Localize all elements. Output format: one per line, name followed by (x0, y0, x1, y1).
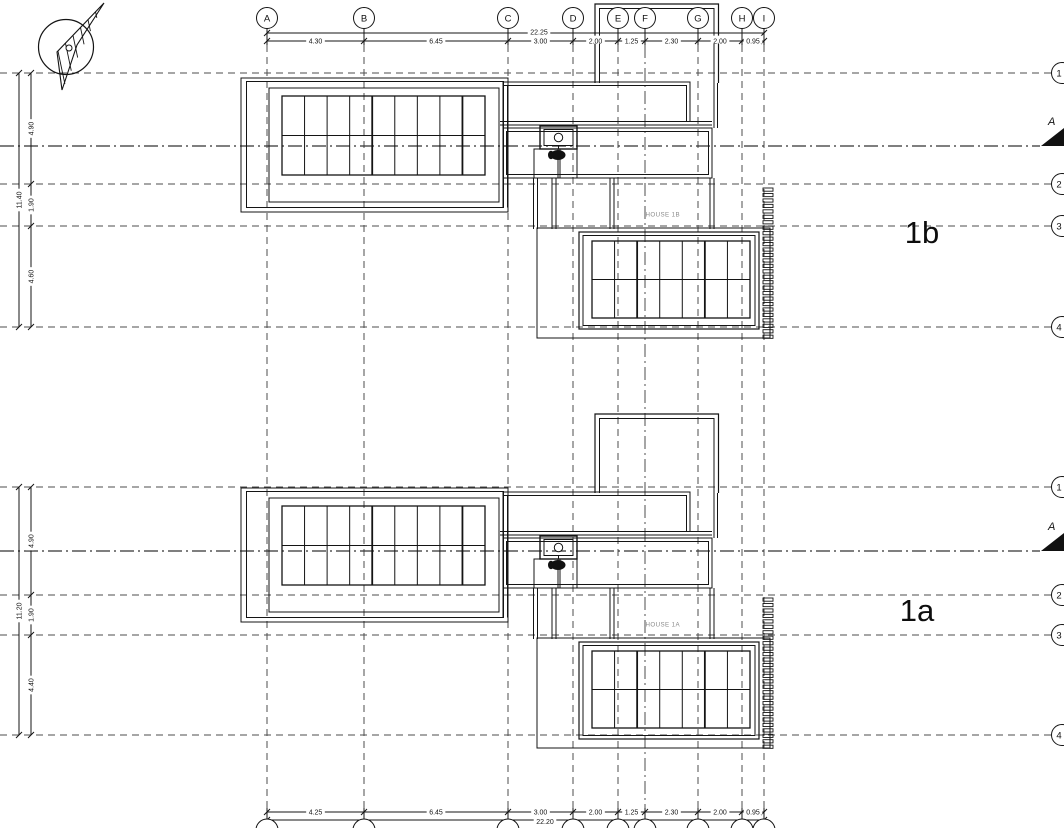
grid-row-label: 1 (1056, 68, 1061, 79)
grid-lines (0, 45, 1051, 819)
floor-plan-canvas: HOUSE 1BHOUSE 1A1b1aAA22.254.306.453.002… (0, 0, 1064, 828)
dimension-label: 4.60 (29, 270, 36, 284)
dimension-label: 0.95 (746, 39, 760, 46)
dimension-label-group: 4.40 (26, 676, 36, 695)
grid-column-label: H (739, 14, 746, 25)
north-arrow-hatch (81, 28, 85, 45)
grid-column-label: B (361, 14, 367, 25)
grid-row-label: 1 (1056, 482, 1061, 493)
house-plan-1b: HOUSE 1B (241, 4, 773, 338)
grid-column-label: G (694, 14, 701, 25)
house-caption: HOUSE 1B (646, 212, 681, 219)
dimension-label: 2.00 (589, 810, 603, 817)
dimension-label: 0.95 (746, 810, 760, 817)
north-arrow-icon (39, 3, 105, 90)
dimension-label: 4.40 (29, 678, 36, 692)
dimension-label: 1.90 (29, 198, 36, 212)
top-dimensions: 22.254.306.453.002.001.252.302.000.95 (264, 27, 767, 46)
dimension-label-group: 1.90 (26, 606, 36, 625)
grid-row-label: 4 (1056, 322, 1061, 333)
section-marker-arrow (1041, 128, 1064, 146)
north-arrow-hatch (96, 12, 97, 18)
dimension-label: 2.00 (713, 810, 727, 817)
dimension-label: 2.00 (713, 39, 727, 46)
dimension-label: 6.45 (429, 810, 443, 817)
ladder-rung (763, 281, 773, 284)
dimension-label: 3.00 (534, 39, 548, 46)
ladder-rung (763, 702, 773, 705)
corridor-outline (503, 82, 690, 122)
corridor-outline-inner (503, 86, 687, 122)
section-marker-label: A (1047, 521, 1055, 533)
dimension-label: 6.45 (429, 39, 443, 46)
dimension-label: 11.20 (17, 602, 24, 619)
ladder-rung (763, 642, 773, 645)
dimension-label-group: 4.60 (26, 267, 36, 286)
dimension-label: 4.90 (29, 534, 36, 548)
ladder-rung (763, 270, 773, 273)
corridor-outline-inner (503, 496, 687, 532)
dimension-label-group: 4.90 (26, 532, 36, 551)
north-arrow-needle (57, 3, 104, 90)
grid-column-label: C (505, 14, 512, 25)
ladder-rung (763, 232, 773, 235)
left-block-outer-inner (247, 492, 504, 618)
flue-solid (548, 151, 554, 159)
grid-row-label: 3 (1056, 630, 1061, 641)
ladder-rung (763, 292, 773, 295)
dimension-label-group: 11.40 (14, 189, 24, 212)
dimension-label: 3.00 (534, 810, 548, 817)
dimension-label: 4.30 (309, 39, 323, 46)
grid-row-label: 2 (1056, 179, 1061, 190)
dimension-label: 2.30 (665, 810, 679, 817)
dimension-label: 11.40 (17, 191, 24, 208)
dimension-total-label: 22.25 (530, 30, 548, 37)
dimension-label: 1.25 (625, 810, 639, 817)
flue-solid (548, 561, 554, 569)
dimension-label: 2.30 (665, 39, 679, 46)
house-plan-1a: HOUSE 1A (241, 414, 773, 748)
house-title: 1b (905, 215, 939, 250)
left-dimensions-left_house_1a: 11.204.901.904.40 (14, 484, 36, 738)
fixture-circle (554, 133, 562, 141)
dimension-label: 1.25 (625, 39, 639, 46)
dimension-label: 4.25 (309, 810, 323, 817)
middle-band-inner (507, 132, 709, 175)
grid-column-label: F (642, 14, 648, 25)
ladder-rung (763, 653, 773, 656)
middle-band-inner (507, 542, 709, 585)
dimension-label: 1.90 (29, 608, 36, 622)
left-dimensions-left_house_1b: 11.404.901.904.60 (14, 70, 36, 330)
grid-column-label: I (763, 14, 766, 25)
corridor-outline (503, 492, 690, 532)
grid-column-label: A (264, 14, 271, 25)
section-marker-label: A (1047, 116, 1055, 128)
lower-roof-inner (583, 236, 755, 326)
dimension-label-group: 4.90 (26, 119, 36, 138)
house-title: 1a (900, 593, 935, 628)
grid-column-label: E (615, 14, 621, 25)
left-block-outer (241, 488, 508, 622)
ladder-rung (763, 221, 773, 224)
ladder-rung (763, 210, 773, 213)
floor-plan-sheet: HOUSE 1BHOUSE 1A1b1aAA22.254.306.453.002… (0, 0, 1064, 828)
north-arrow-hub (66, 45, 72, 51)
grid-row-label: 2 (1056, 590, 1061, 601)
dimension-label: 2.00 (589, 39, 603, 46)
lower-deck (537, 638, 770, 748)
ladder-rung (763, 330, 773, 333)
left-block-outer-inner (247, 82, 504, 208)
dimension-total-label: 22.20 (536, 819, 554, 826)
lower-roof-inner (583, 646, 755, 736)
lower-deck (537, 228, 770, 338)
house-titles: 1b1a (900, 215, 939, 628)
grid-row-label: 4 (1056, 730, 1061, 741)
tower-outline-inner (600, 419, 715, 494)
house-caption: HOUSE 1A (646, 622, 681, 629)
dimension-label-group: 1.90 (26, 196, 36, 215)
fixture-circle (554, 543, 562, 551)
left-block-roof (269, 88, 499, 202)
dimension-label-group: 11.20 (14, 600, 24, 623)
section-marker-arrow (1041, 533, 1064, 551)
grid-column-label: D (570, 14, 577, 25)
tower-outline (595, 414, 719, 493)
ladder-rung (763, 712, 773, 715)
left-block-outer (241, 78, 508, 212)
lower-roof-outer (579, 642, 759, 739)
lower-roof-outer (579, 232, 759, 329)
grid-row-label: 3 (1056, 221, 1061, 232)
dimension-label: 4.90 (29, 122, 36, 136)
